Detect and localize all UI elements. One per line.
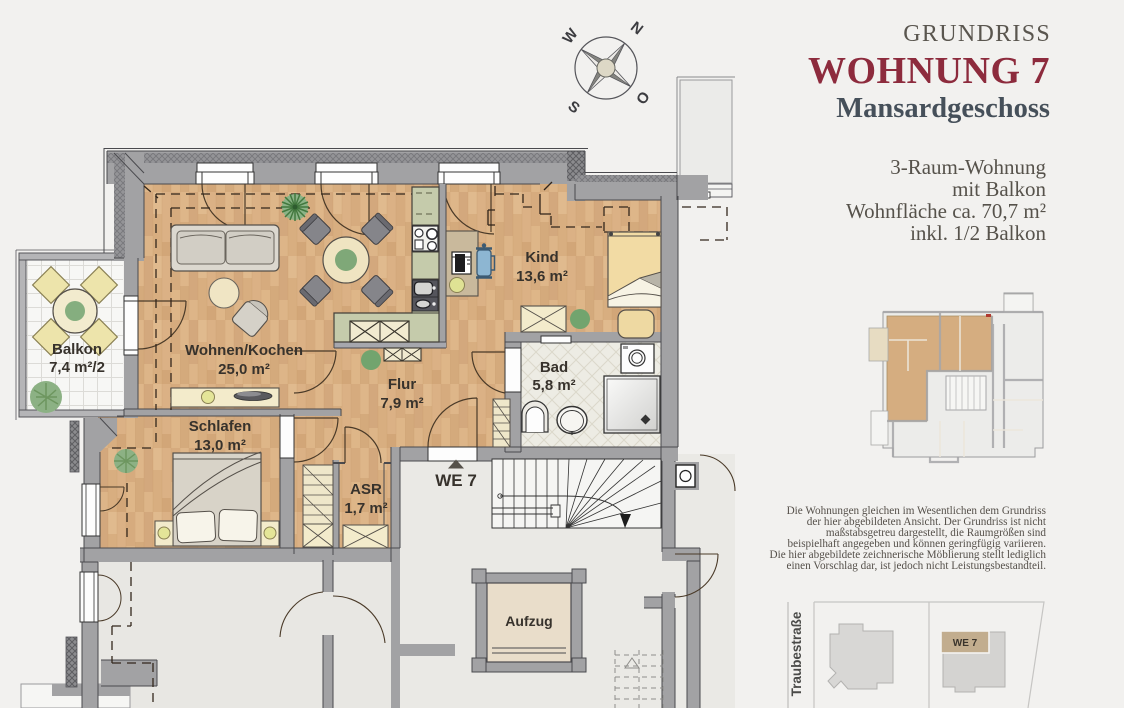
svg-text:Aufzug: Aufzug: [505, 613, 552, 629]
svg-text:7,9 m²: 7,9 m²: [380, 395, 423, 412]
svg-text:inkl. 1/2 Balkon: inkl. 1/2 Balkon: [910, 221, 1046, 245]
svg-text:einen Vorschlag dar, ist jedoc: einen Vorschlag dar, ist jedoch nicht Le…: [786, 560, 1046, 572]
svg-text:Balkon: Balkon: [52, 341, 102, 358]
svg-text:1,7 m²: 1,7 m²: [344, 500, 387, 517]
svg-text:WOHNUNG 7: WOHNUNG 7: [808, 50, 1050, 92]
svg-text:Traubestraße: Traubestraße: [789, 611, 804, 696]
svg-text:Bad: Bad: [540, 359, 568, 376]
svg-text:Flur: Flur: [388, 376, 416, 393]
svg-text:13,6 m²: 13,6 m²: [516, 268, 568, 285]
svg-text:Mansardgeschoss: Mansardgeschoss: [836, 93, 1050, 124]
svg-text:Wohnen/Kochen: Wohnen/Kochen: [185, 342, 303, 359]
svg-text:Wohnfläche ca. 70,7 m²: Wohnfläche ca. 70,7 m²: [846, 199, 1046, 223]
svg-text:ASR: ASR: [350, 481, 382, 498]
svg-text:13,0 m²: 13,0 m²: [194, 437, 246, 454]
svg-text:5,8 m²: 5,8 m²: [532, 377, 575, 394]
svg-text:25,0 m²: 25,0 m²: [218, 361, 270, 378]
svg-text:7,4 m²/2: 7,4 m²/2: [49, 359, 105, 376]
svg-text:Kind: Kind: [525, 249, 558, 266]
svg-text:GRUNDRISS: GRUNDRISS: [903, 21, 1051, 47]
svg-text:WE 7: WE 7: [435, 471, 477, 490]
svg-text:WE 7: WE 7: [953, 638, 978, 649]
svg-text:3-Raum-Wohnung: 3-Raum-Wohnung: [890, 155, 1046, 179]
svg-text:mit Balkon: mit Balkon: [952, 177, 1046, 201]
svg-text:Schlafen: Schlafen: [189, 418, 252, 435]
